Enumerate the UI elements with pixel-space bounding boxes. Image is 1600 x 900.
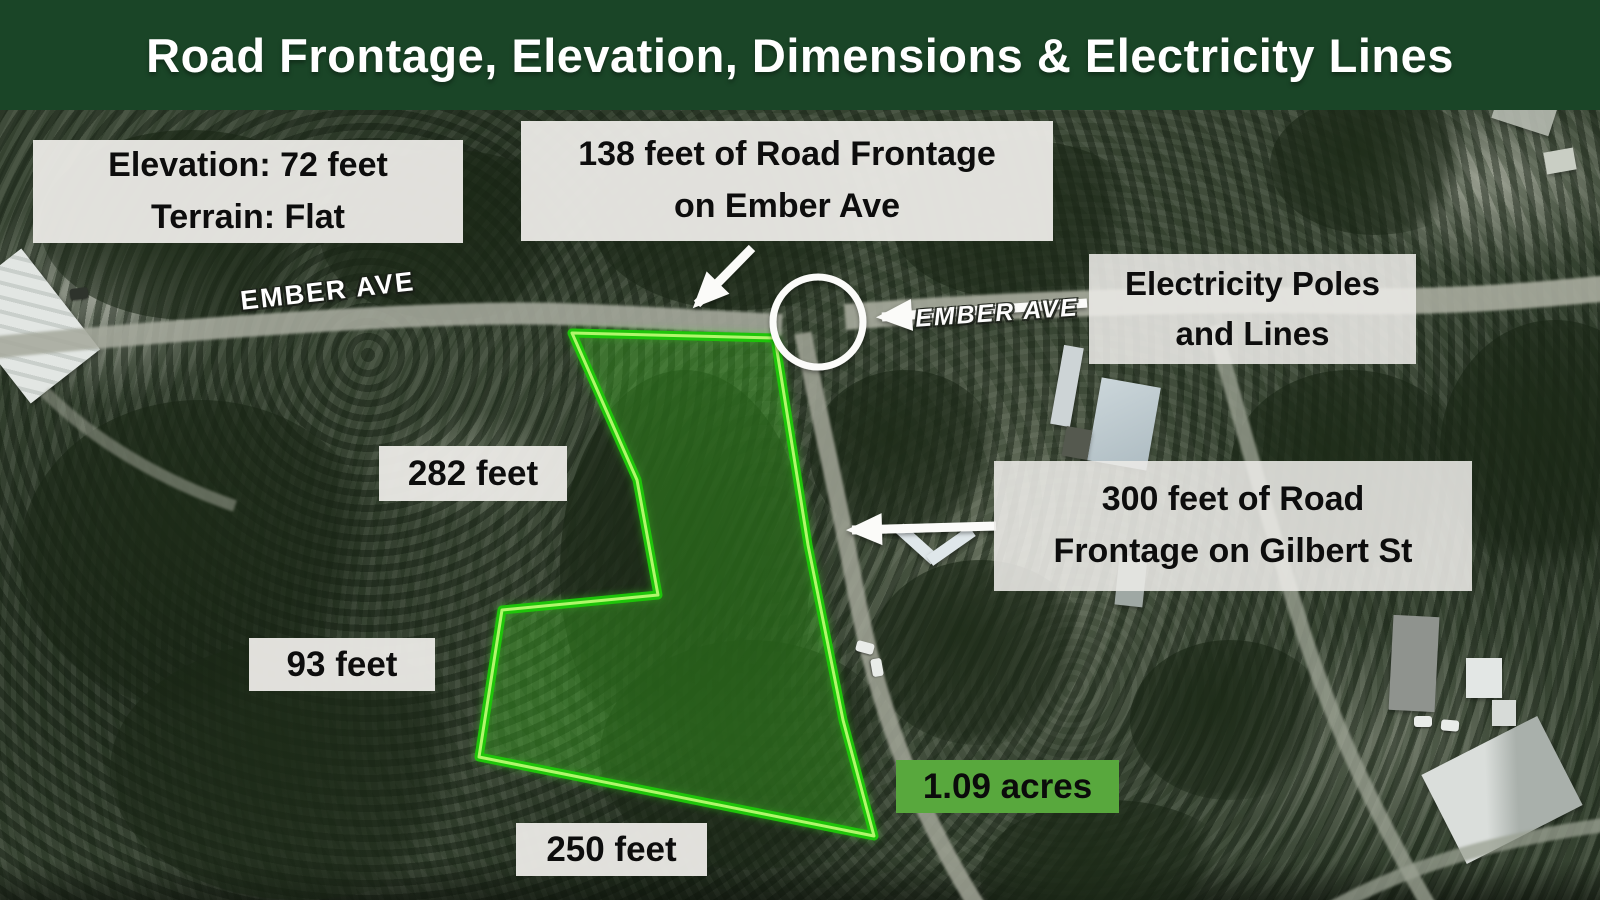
gilbert-frontage-line2: Frontage on Gilbert St (1054, 526, 1413, 578)
dimension-south-text: 250 feet (546, 823, 676, 876)
callout-electricity: Electricity Poles and Lines (1089, 254, 1416, 364)
gilbert-frontage-line1: 300 feet of Road (1102, 474, 1365, 526)
electricity-line2: and Lines (1175, 309, 1329, 359)
acreage-badge: 1.09 acres (896, 760, 1119, 813)
dimension-west-text: 282 feet (408, 447, 538, 500)
dimension-south-side: 250 feet (516, 823, 707, 876)
elevation-text: Elevation: 72 feet (108, 140, 388, 192)
ember-frontage-line1: 138 feet of Road Frontage (578, 129, 996, 181)
terrain-text: Terrain: Flat (151, 192, 345, 244)
page-title: Road Frontage, Elevation, Dimensions & E… (146, 28, 1454, 83)
electricity-line1: Electricity Poles (1125, 259, 1380, 309)
annotated-satellite-view: EMBER AVE EMBER AVE Elevation: 72 feet T… (0, 0, 1600, 900)
dimension-notch-text: 93 feet (287, 638, 398, 691)
callout-ember-frontage: 138 feet of Road Frontage on Ember Ave (521, 121, 1053, 241)
dimension-west-side: 282 feet (379, 446, 567, 501)
dimension-notch-side: 93 feet (249, 638, 435, 691)
callout-elevation-terrain: Elevation: 72 feet Terrain: Flat (33, 140, 463, 243)
ember-frontage-line2: on Ember Ave (674, 181, 900, 233)
title-bar: Road Frontage, Elevation, Dimensions & E… (0, 0, 1600, 110)
callout-gilbert-frontage: 300 feet of Road Frontage on Gilbert St (994, 461, 1472, 591)
acreage-text: 1.09 acres (923, 760, 1092, 813)
